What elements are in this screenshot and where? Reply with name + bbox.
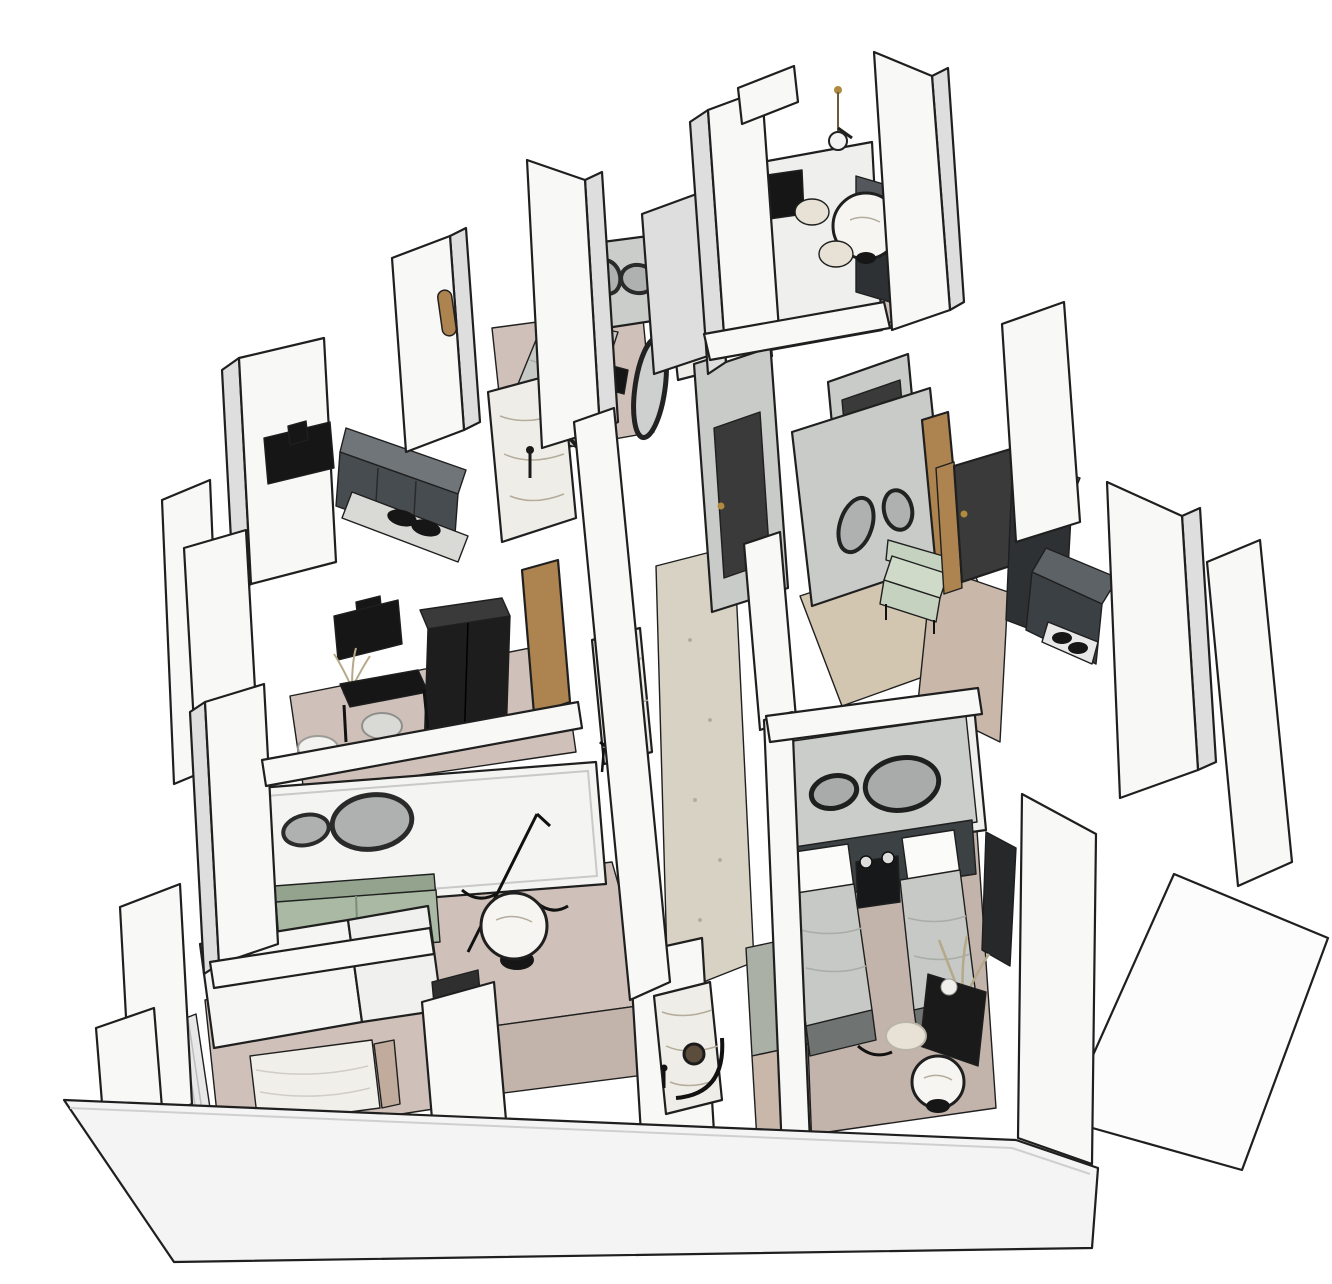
twin-cream-pouf [886, 1022, 926, 1050]
twin-wardrobe [982, 832, 1016, 966]
twin-desk-vase [941, 979, 957, 995]
wall-far-right [1207, 540, 1292, 886]
wall-living-left [205, 684, 278, 964]
twin-side-table-base [926, 1099, 950, 1113]
nook-pouf-1 [795, 199, 829, 225]
floorplan-3d-viewport[interactable] [0, 0, 1332, 1284]
coffee-table [481, 893, 547, 959]
bath-round-mirror [684, 1044, 704, 1064]
kitchen-tv-mount [288, 421, 308, 445]
door-handle-gold [961, 511, 968, 518]
wall-upper-right [1002, 302, 1080, 542]
wall-top-left [392, 236, 464, 452]
room-kitchen-left [336, 428, 468, 562]
nook-pouf-2 [819, 241, 853, 267]
wall-twin-right [1018, 794, 1096, 1164]
kitchen2-burner-1 [1052, 632, 1072, 644]
door-handle-gold [718, 503, 725, 510]
wall-sconce-1 [860, 856, 872, 868]
balcony-slab [1064, 874, 1328, 1170]
kitchen2-burner-2 [1068, 642, 1088, 654]
pendant-lamp [829, 86, 852, 150]
outer-front-band [64, 1100, 1098, 1262]
nook-table-base [856, 252, 876, 264]
floorplan-3d-render [0, 0, 1332, 1284]
corridor-floor [656, 546, 754, 996]
study-tv [334, 600, 402, 660]
wall-sconce-2 [882, 852, 894, 864]
